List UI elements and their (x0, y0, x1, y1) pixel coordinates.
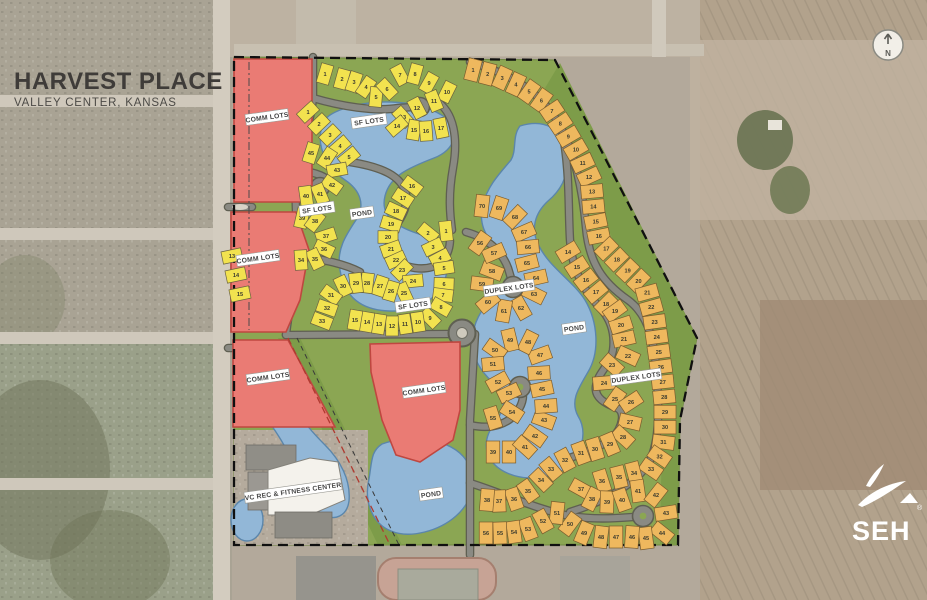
lot-number: 3 (352, 80, 355, 86)
lot-number: 55 (490, 416, 496, 422)
lot-number: 40 (619, 498, 625, 504)
lot-number: 27 (627, 420, 633, 426)
lot-number: 60 (485, 300, 491, 306)
lot-number: 5 (347, 155, 350, 161)
lot-number: 14 (364, 320, 371, 326)
lot-number: 57 (491, 251, 497, 257)
lot-number: 31 (328, 293, 334, 299)
lot-number: 45 (643, 536, 649, 542)
lot-number: 14 (394, 124, 401, 130)
lot-number: 48 (525, 340, 531, 346)
lot-number: 47 (537, 353, 543, 359)
lot-number: 18 (393, 209, 399, 215)
lot-number: 46 (629, 535, 635, 541)
lot-number: 41 (635, 489, 641, 495)
lot-number: 35 (525, 489, 531, 495)
lot-number: 49 (581, 531, 587, 537)
lot-number: 26 (628, 400, 634, 406)
lot-number: 48 (598, 535, 604, 541)
lot-number: 9 (428, 316, 431, 322)
lot-number: 7 (441, 293, 444, 299)
lot-number: 15 (411, 128, 417, 134)
lot-number: 19 (624, 268, 630, 274)
lot-number: 24 (601, 381, 608, 387)
lot-number: 28 (661, 395, 667, 401)
lot-number: 39 (490, 450, 496, 456)
lot-number: 27 (377, 284, 383, 290)
lot-number: 23 (652, 320, 658, 326)
lot-number: 1 (471, 68, 474, 74)
lot-number: 42 (329, 183, 335, 189)
lot-number: 2 (486, 72, 489, 78)
lot-number: 44 (324, 156, 331, 162)
lot-number: 58 (489, 269, 495, 275)
lot-number: 22 (648, 305, 654, 311)
lot-number: 52 (540, 519, 546, 525)
lot-number: 1 (306, 110, 309, 116)
lot-number: 16 (583, 278, 589, 284)
lot-number: 22 (625, 354, 631, 360)
lot-number: 16 (409, 184, 415, 190)
lot-number: 13 (376, 322, 382, 328)
seh-logo-text: SEH (852, 516, 911, 546)
lot-number: 1 (323, 72, 326, 78)
lot-number: 39 (604, 500, 610, 506)
lot-number: 15 (352, 318, 358, 324)
lot-number: 21 (621, 337, 627, 343)
lot-number: 51 (490, 362, 496, 368)
lot-number: 27 (660, 380, 666, 386)
lot-number: 42 (532, 434, 538, 440)
lot-number: 35 (312, 257, 318, 263)
lot-number: 15 (237, 292, 243, 298)
lot-number: 54 (511, 530, 518, 536)
lot-number: 68 (512, 215, 518, 221)
lot-number: 21 (644, 291, 650, 297)
lot-number: 6 (540, 98, 543, 104)
lot-number: 7 (550, 109, 553, 115)
lot-number: 2 (426, 231, 429, 237)
north-arrow: N (873, 30, 903, 60)
lot-number: 14 (590, 204, 597, 210)
lot-number: 11 (431, 99, 437, 105)
lot-number: 23 (609, 363, 615, 369)
lot-number: 65 (524, 261, 530, 267)
lot-number: 31 (578, 451, 584, 457)
lot-number: 17 (593, 290, 599, 296)
north-label: N (885, 49, 891, 58)
lot-number: 29 (353, 281, 359, 287)
lot-number: 50 (567, 522, 573, 528)
lot-number: 47 (613, 535, 619, 541)
lot-number: 2 (317, 122, 320, 128)
lot-number: 45 (308, 151, 314, 157)
lot-number: 3 (501, 76, 504, 82)
lot-number: 53 (506, 391, 512, 397)
lot-number: 37 (578, 487, 584, 493)
lot-number: 55 (497, 531, 503, 537)
lot-number: 34 (538, 478, 545, 484)
lot-number: 2 (340, 77, 343, 83)
lot-number: 33 (319, 319, 325, 325)
lot-number: 34 (631, 471, 638, 477)
stadium-area (296, 556, 630, 600)
lot-number: 69 (496, 206, 502, 212)
lot-number: 5 (528, 90, 531, 96)
lot-number: 38 (312, 219, 318, 225)
lot-number: 32 (324, 306, 330, 312)
lot-number: 40 (506, 450, 512, 456)
lot-number: 36 (321, 247, 327, 253)
lot-number: 53 (525, 527, 531, 533)
lot-number: 24 (410, 279, 417, 285)
lot-number: 35 (616, 475, 622, 481)
lot-number: 56 (483, 531, 489, 537)
lot-number: 49 (507, 338, 513, 344)
lot-number: 10 (444, 90, 450, 96)
lot-number: 5 (442, 266, 445, 272)
lot-number: 54 (509, 410, 516, 416)
map-canvas: 1234567891011121314151617123454544434241… (0, 0, 927, 600)
lot-number: 13 (229, 254, 235, 260)
lot-number: 20 (635, 279, 641, 285)
lot-number: 42 (653, 493, 659, 499)
lot-number: 12 (414, 106, 420, 112)
comm-parcel-1 (234, 59, 312, 202)
lot-number: 23 (399, 268, 405, 274)
lot-number: 22 (393, 258, 399, 264)
lot-number: 19 (612, 309, 618, 315)
lot-number: 11 (402, 322, 408, 328)
lot-number: 70 (479, 204, 485, 210)
lot-number: 41 (522, 445, 528, 451)
lot-number: 18 (603, 302, 609, 308)
lot-number: 14 (565, 250, 572, 256)
lot-number: 8 (413, 72, 416, 78)
lot-number: 43 (663, 511, 669, 517)
lot-number: 8 (559, 122, 562, 128)
lot-number: 30 (340, 284, 346, 290)
lot-number: 19 (388, 222, 394, 228)
lot-number: 67 (521, 230, 527, 236)
lot-number: 18 (614, 258, 620, 264)
lot-number: 26 (388, 289, 394, 295)
lot-number: 15 (593, 219, 599, 225)
seh-logo-registered: ® (917, 504, 923, 512)
lot-number: 45 (539, 387, 545, 393)
lot-number: 10 (573, 147, 579, 153)
lot-number: 25 (401, 291, 407, 297)
lot-number: 36 (599, 479, 605, 485)
lot-number: 3 (328, 133, 331, 139)
lot-number: 29 (607, 442, 613, 448)
lot-number: 7 (398, 73, 401, 79)
lot-number: 38 (589, 497, 595, 503)
lot-number: 63 (531, 292, 537, 298)
lot-number: 21 (388, 247, 394, 253)
lot-number: 33 (648, 467, 654, 473)
lot-number: 34 (298, 258, 305, 264)
lot-number: 41 (317, 192, 323, 198)
lot-number: 20 (385, 235, 391, 241)
lot-number: 24 (654, 335, 661, 341)
lot-number: 1 (444, 229, 447, 235)
lot-number: 16 (596, 234, 602, 240)
lot-number: 44 (543, 404, 550, 410)
lot-number: 43 (541, 418, 547, 424)
lot-number: 37 (496, 499, 502, 505)
lot-number: 62 (518, 306, 524, 312)
lot-number: 56 (477, 241, 483, 247)
lot-number: 20 (618, 323, 624, 329)
lot-number: 10 (415, 320, 421, 326)
lot-number: 66 (525, 245, 531, 251)
lot-number: 43 (334, 168, 340, 174)
lot-number: 12 (586, 175, 592, 181)
lot-number: 51 (554, 511, 560, 517)
lot-number: 46 (536, 371, 542, 377)
lot-number: 40 (303, 194, 309, 200)
lot-number: 17 (400, 196, 406, 202)
lot-number: 17 (603, 247, 609, 253)
lot-number: 13 (589, 189, 595, 195)
lot-number: 36 (511, 497, 517, 503)
lot-number: 6 (385, 87, 388, 93)
lot-number: 17 (438, 126, 444, 132)
lot-number: 12 (389, 324, 395, 330)
lot-number: 37 (323, 234, 329, 240)
lot-number: 25 (656, 350, 662, 356)
lot-number: 32 (562, 458, 568, 464)
lot-number: 28 (364, 281, 370, 287)
lot-number: 44 (659, 531, 666, 537)
lot-number: 61 (501, 309, 507, 315)
lot-number: 9 (427, 81, 430, 87)
lot-number: 5 (374, 95, 377, 101)
lot-number: 38 (484, 498, 490, 504)
lot-number: 14 (233, 273, 240, 279)
lot-number: 28 (620, 435, 626, 441)
lot-number: 30 (662, 425, 668, 431)
lot-number: 16 (423, 129, 429, 135)
lot-number: 33 (548, 467, 554, 473)
lot-number: 15 (574, 265, 580, 271)
lot-number: 50 (492, 348, 498, 354)
lot-number: 11 (580, 161, 586, 167)
lot-number: 8 (439, 305, 442, 311)
lot-number: 6 (442, 282, 445, 288)
site-plan-map: 1234567891011121314151617123454544434241… (0, 0, 927, 600)
lot-number: 32 (656, 455, 662, 461)
lot-number: 52 (495, 380, 501, 386)
lot-number: 31 (660, 440, 666, 446)
lot-number: 9 (567, 134, 570, 140)
lot-number: 30 (592, 447, 598, 453)
lot-number: 29 (662, 410, 668, 416)
lot-number: 3 (431, 245, 434, 251)
lot-number: 25 (612, 397, 618, 403)
